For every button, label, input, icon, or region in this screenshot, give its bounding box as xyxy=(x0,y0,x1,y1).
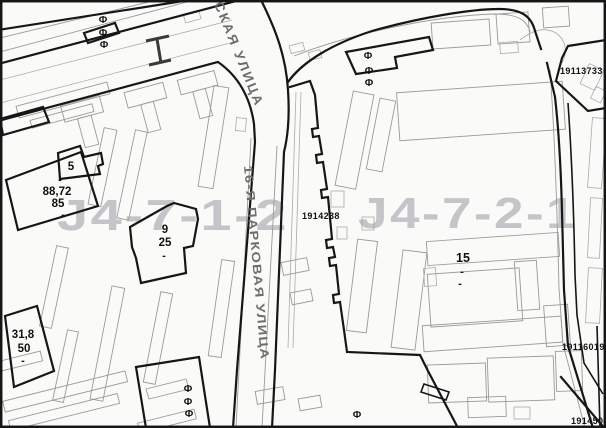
bold-building xyxy=(0,107,49,135)
building-31-number: 50 xyxy=(18,343,31,355)
road-north-edge xyxy=(0,0,190,30)
street-label-top: СКАЯ УЛИЦА xyxy=(211,0,267,109)
utility-pole-icon: Ф xyxy=(100,40,109,51)
building-outline xyxy=(235,118,246,132)
street-west-edge xyxy=(0,62,255,428)
building-5-outline xyxy=(58,146,103,179)
building-outline xyxy=(542,6,569,28)
building-outline xyxy=(290,289,313,305)
building-outline xyxy=(496,12,530,44)
building-outline xyxy=(586,268,603,324)
north-parcel-curve xyxy=(288,9,541,82)
street-inner-line xyxy=(288,92,296,348)
building-31-area: 31,8 xyxy=(12,329,35,341)
building-outline xyxy=(77,115,98,148)
street-inner-line xyxy=(293,92,301,348)
building-88-area: 88,72 xyxy=(43,186,72,198)
building-outline xyxy=(487,356,554,402)
building-outline xyxy=(346,239,377,333)
building-outline xyxy=(198,86,229,189)
parcel-number-19116019: 19116019 xyxy=(562,342,605,352)
building-outline xyxy=(289,42,305,53)
t-building xyxy=(61,95,112,151)
parcel-number-1914238: 1914238 xyxy=(302,211,340,221)
building-outline xyxy=(177,71,218,95)
utility-pole-icon: Ф xyxy=(365,78,374,89)
road-guide-curve xyxy=(520,30,565,63)
utility-pole-icon: Ф xyxy=(365,66,374,77)
bold-building-ne xyxy=(346,37,433,74)
building-15-number: 15 xyxy=(456,251,470,265)
building-outline xyxy=(427,268,522,327)
watermark-right: J4-7-2-1 xyxy=(358,189,578,238)
building-outline xyxy=(208,260,234,358)
building-outline xyxy=(53,330,79,403)
parcel-number-1914504: 1914504 xyxy=(571,416,606,426)
building-outline xyxy=(423,268,436,287)
building-outline xyxy=(141,101,161,132)
building-outline xyxy=(587,198,602,259)
utility-pole-icon: Ф xyxy=(185,409,194,420)
building-outline xyxy=(281,258,309,276)
building-outline xyxy=(514,407,530,419)
building-outline xyxy=(146,379,189,399)
building-outline xyxy=(298,395,322,411)
building-31-dash: - xyxy=(21,355,25,367)
building-outline xyxy=(397,81,566,140)
building-outline xyxy=(422,316,562,352)
utility-pole-icon: Ф xyxy=(353,410,362,421)
building-outline xyxy=(40,246,69,329)
parcel-number-19113733: 19113733 xyxy=(560,66,603,76)
building-9-number: 9 xyxy=(162,224,168,236)
building-5-number: 5 xyxy=(68,161,75,173)
utility-pole-icon: Ф xyxy=(99,15,108,26)
road-guide-line xyxy=(550,70,585,428)
t-building xyxy=(124,82,174,136)
building-outline xyxy=(337,227,347,239)
utility-pole-icon: Ф xyxy=(364,51,373,62)
building-outline xyxy=(431,19,491,49)
building-15-dash1: - xyxy=(460,266,464,278)
road-guide-line xyxy=(0,43,230,103)
crossing-icon-stem xyxy=(157,39,161,63)
building-outline xyxy=(335,91,374,189)
t-building xyxy=(177,71,225,122)
road-mid-edge xyxy=(0,0,240,64)
building-15-dash2: - xyxy=(458,278,462,290)
map-canvas: J4-7-1-2 J4-7-2-1 СКАЯ УЛИЦА xyxy=(0,0,606,428)
road-guide-line xyxy=(0,0,190,38)
utility-pole-icon: Ф xyxy=(99,28,108,39)
building-5-dash: - xyxy=(58,174,62,186)
utility-pole-icon: Ф xyxy=(184,384,193,395)
building-outline xyxy=(588,118,606,189)
utility-pole-icon: Ф xyxy=(184,397,193,408)
building-outline xyxy=(255,387,285,405)
crossing-icon xyxy=(146,36,171,65)
building-outline xyxy=(331,191,344,207)
road-guide-line xyxy=(0,0,224,52)
building-outline xyxy=(366,98,395,172)
road-guide-line xyxy=(0,20,232,80)
building-9-dash: - xyxy=(162,250,166,262)
building-outline xyxy=(143,292,172,385)
parcel-1914238-boundary xyxy=(290,81,458,428)
cadastral-map: J4-7-1-2 J4-7-2-1 СКАЯ УЛИЦА xyxy=(0,0,606,428)
building-outline xyxy=(391,250,427,350)
building-88-dash: - xyxy=(61,209,65,221)
building-9-sub: 25 xyxy=(159,237,172,249)
